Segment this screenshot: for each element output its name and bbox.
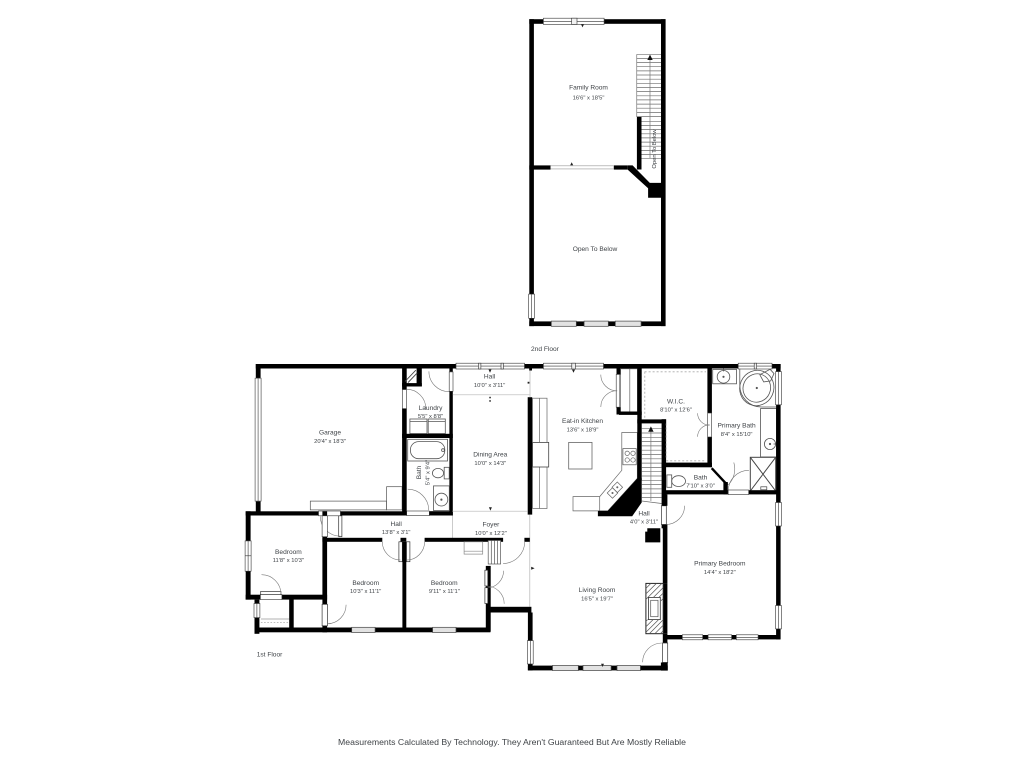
svg-text:Bedroom: Bedroom — [431, 580, 458, 587]
svg-text:4'0" x 3'11": 4'0" x 3'11" — [630, 520, 658, 526]
svg-text:Family Room: Family Room — [569, 85, 608, 92]
svg-text:13'6" x 18'9": 13'6" x 18'9" — [567, 428, 599, 434]
svg-text:5'4" x 9'4": 5'4" x 9'4" — [426, 460, 432, 485]
svg-text:16'5" x 19'7": 16'5" x 19'7" — [581, 597, 613, 603]
svg-text:Living Room: Living Room — [579, 587, 616, 594]
svg-text:20'4" x 18'3": 20'4" x 18'3" — [314, 439, 346, 445]
svg-text:Hall: Hall — [638, 511, 650, 518]
svg-text:Primary Bedroom: Primary Bedroom — [694, 561, 746, 568]
svg-text:14'4" x 18'2": 14'4" x 18'2" — [704, 570, 736, 576]
svg-text:Bedroom: Bedroom — [352, 580, 379, 587]
svg-text:10'3" x 11'1": 10'3" x 11'1" — [350, 589, 381, 595]
svg-text:8'4" x 15'10": 8'4" x 15'10" — [721, 432, 753, 438]
svg-text:Primary Bath: Primary Bath — [718, 423, 756, 430]
svg-text:Garage: Garage — [319, 430, 341, 437]
svg-text:Hall: Hall — [391, 521, 403, 528]
svg-text:Measurements Calculated By Tec: Measurements Calculated By Technology. T… — [338, 737, 686, 747]
svg-text:16'6" x 18'5": 16'6" x 18'5" — [573, 96, 605, 102]
svg-text:Open To Below: Open To Below — [652, 129, 658, 169]
svg-text:5'5" x 8'8": 5'5" x 8'8" — [418, 414, 443, 420]
svg-text:Eat-in Kitchen: Eat-in Kitchen — [562, 418, 603, 425]
svg-text:7'10" x 3'0": 7'10" x 3'0" — [686, 484, 715, 490]
svg-text:Foyer: Foyer — [482, 522, 500, 529]
svg-text:Bedroom: Bedroom — [275, 549, 302, 556]
svg-text:10'0" x 14'3": 10'0" x 14'3" — [474, 461, 506, 467]
svg-text:8'10" x 12'6": 8'10" x 12'6" — [660, 408, 692, 414]
svg-text:Bath: Bath — [694, 475, 708, 482]
svg-text:11'8" x 10'3": 11'8" x 10'3" — [273, 558, 304, 564]
svg-text:9'11" x 11'1": 9'11" x 11'1" — [429, 589, 460, 595]
svg-text:10'0" x 12'2": 10'0" x 12'2" — [475, 531, 507, 537]
svg-text:Bath: Bath — [416, 465, 423, 479]
svg-text:Laundry: Laundry — [419, 405, 444, 412]
svg-text:W.I.C.: W.I.C. — [667, 399, 685, 406]
svg-text:1st Floor: 1st Floor — [257, 652, 283, 659]
svg-text:10'0" x 3'11": 10'0" x 3'11" — [474, 383, 505, 389]
svg-text:Dining Area: Dining Area — [473, 452, 507, 459]
svg-text:2nd Floor: 2nd Floor — [531, 346, 560, 353]
svg-text:Hall: Hall — [484, 374, 496, 381]
svg-text:13'8" x 3'1": 13'8" x 3'1" — [382, 530, 411, 536]
svg-text:Open To Below: Open To Below — [573, 246, 618, 253]
